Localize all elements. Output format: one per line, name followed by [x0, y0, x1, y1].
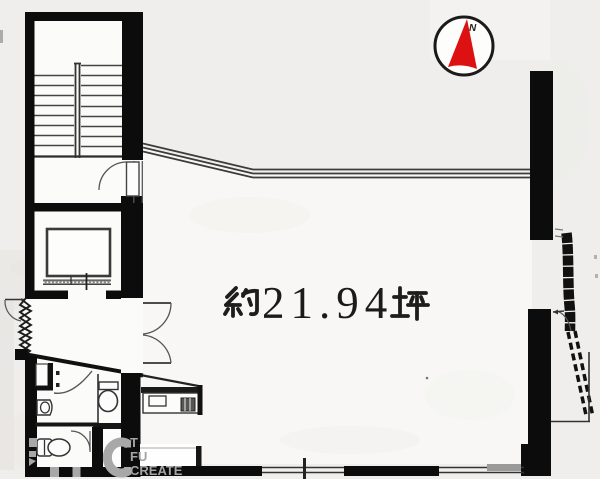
svg-text:FU: FU: [130, 449, 147, 464]
svg-text:N: N: [469, 23, 477, 34]
svg-text:CREATE: CREATE: [130, 463, 183, 478]
svg-text:T: T: [130, 435, 138, 450]
svg-text:21.94: 21.94: [262, 278, 393, 328]
